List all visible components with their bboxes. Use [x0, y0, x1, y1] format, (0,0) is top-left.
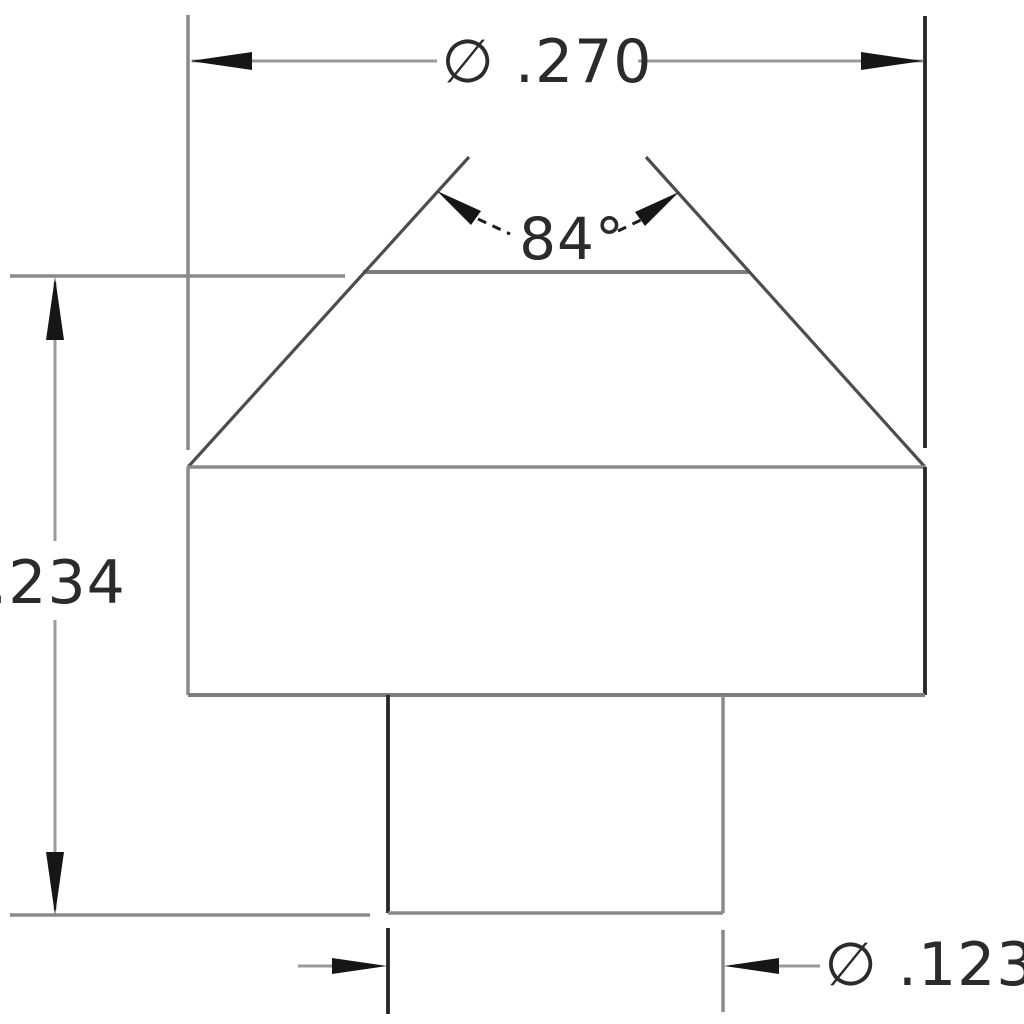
- dim-234-arrow-up: [46, 277, 64, 340]
- dim-label-cone-angle: 84°: [519, 210, 625, 268]
- part-right-chamfer-edge: [646, 157, 925, 467]
- drawing-canvas: [0, 0, 1024, 1024]
- dim-270-arrow-left: [190, 52, 252, 70]
- drawing-sheet: ∅ .270 84° .234 ∅ .123: [0, 0, 1024, 1024]
- dim-84-leader-left-dash: [478, 219, 510, 234]
- dim-label-shaft-diameter: ∅ .123: [825, 935, 1024, 995]
- dim-84-arrow-right: [635, 192, 679, 226]
- part-left-chamfer-edge: [188, 157, 469, 467]
- dim-123-arrow-left: [332, 958, 387, 974]
- dim-234-arrow-down: [46, 852, 64, 915]
- dim-84-arrow-left: [437, 191, 481, 225]
- dim-123-arrow-right: [724, 958, 779, 974]
- dim-label-top-diameter: ∅ .270: [442, 32, 653, 92]
- dim-label-overall-height: .234: [0, 553, 126, 613]
- dim-270-arrow-right: [861, 52, 923, 70]
